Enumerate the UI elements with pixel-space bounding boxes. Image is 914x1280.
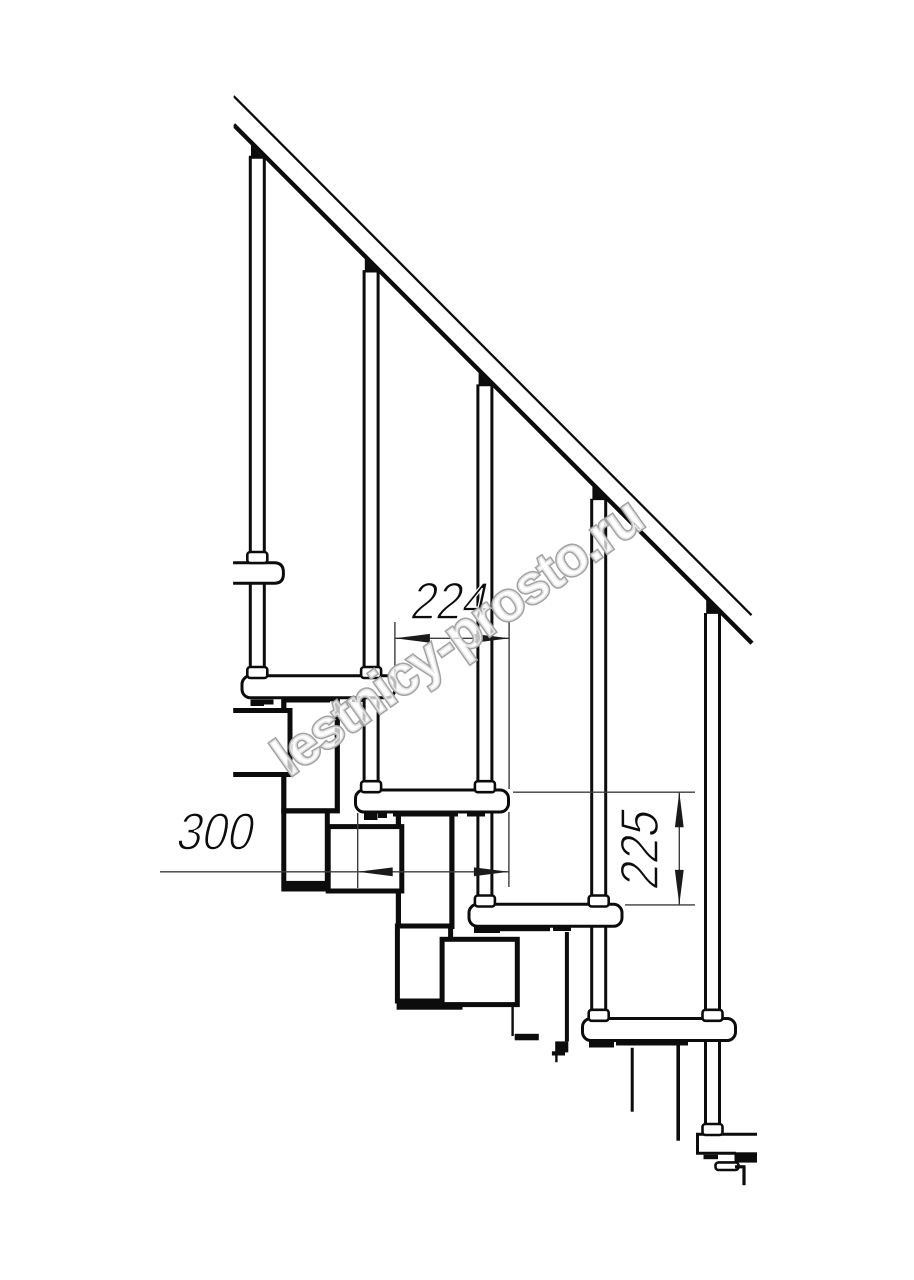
svg-text:300: 300 <box>172 802 261 861</box>
svg-text:225: 225 <box>610 802 670 893</box>
